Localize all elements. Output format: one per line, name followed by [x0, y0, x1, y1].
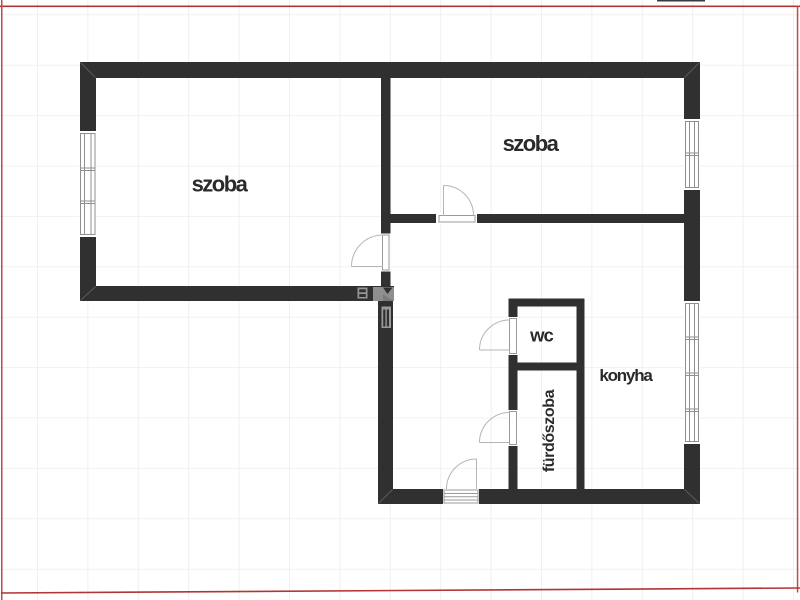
svg-text:konyha: konyha: [599, 366, 653, 385]
svg-text:szoba: szoba: [192, 172, 249, 197]
svg-text:fürdőszoba: fürdőszoba: [541, 389, 558, 472]
svg-text:wc: wc: [529, 325, 553, 346]
svg-text:szoba: szoba: [503, 131, 560, 156]
